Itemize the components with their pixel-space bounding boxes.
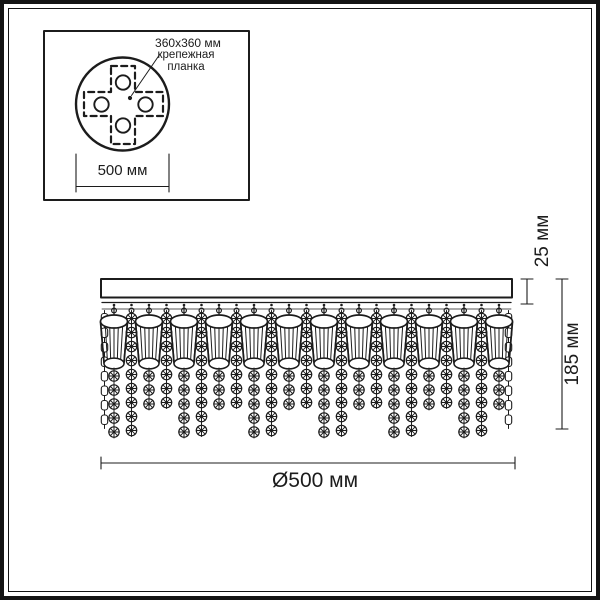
crystal-bead-strands (101, 311, 511, 437)
drawing-canvas (4, 4, 600, 600)
plate-size-label: 360x360 мм (138, 37, 238, 49)
chandelier-drawing (101, 279, 513, 438)
base-width-dimension: 500 мм (72, 162, 173, 179)
leader-anchor-dot (128, 96, 132, 100)
plate-name-label: крепежная планка (151, 50, 221, 73)
total-height-dimension: 185 мм (563, 313, 583, 395)
dim-line-25mm (521, 279, 533, 304)
diameter-dimension: Ø500 мм (235, 469, 395, 493)
band-height-dimension: 25 мм (533, 211, 553, 271)
technical-drawing-page: 360x360 мм крепежная планка 500 мм 25 мм… (0, 0, 600, 600)
dim-line-diameter (101, 457, 515, 469)
